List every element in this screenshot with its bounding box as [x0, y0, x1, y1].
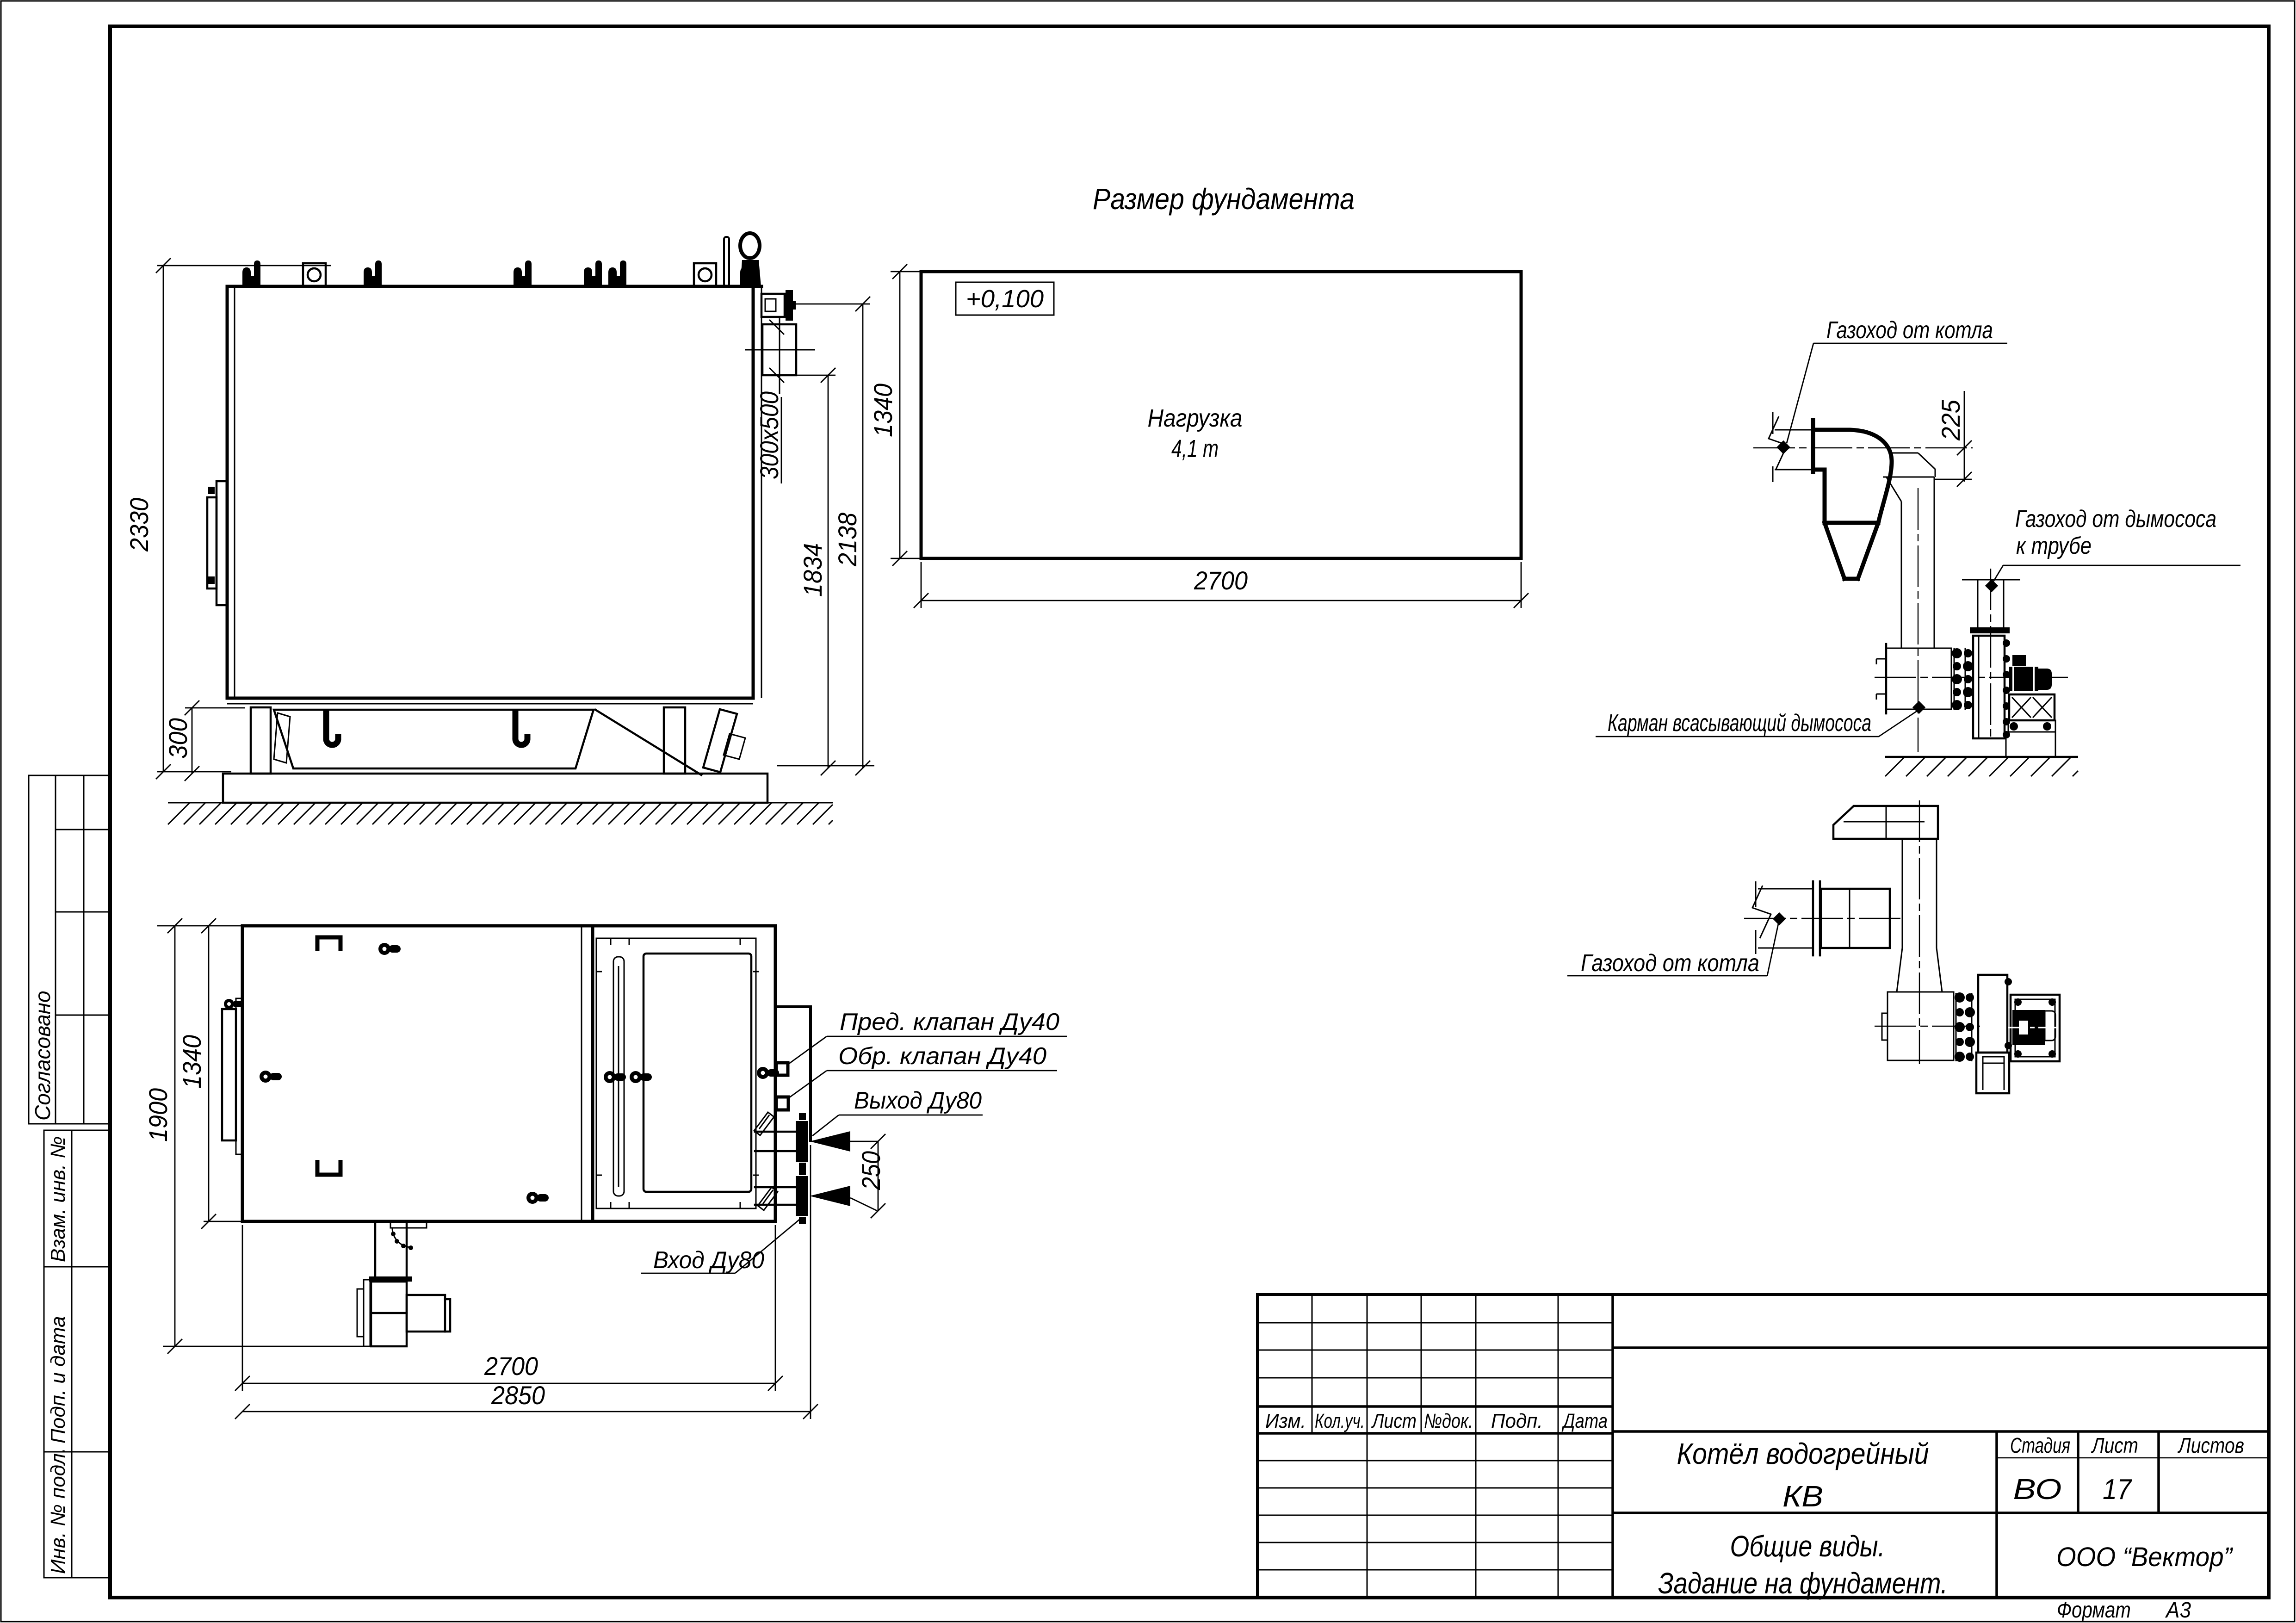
- svg-text:Размер фундамента: Размер фундамента: [1093, 182, 1355, 216]
- svg-text:Листов: Листов: [2177, 1433, 2244, 1457]
- svg-text:2330: 2330: [124, 498, 154, 552]
- svg-text:1340: 1340: [868, 384, 897, 437]
- svg-text:Стадия: Стадия: [2010, 1433, 2070, 1457]
- svg-text:ООО “Вектор”: ООО “Вектор”: [2056, 1542, 2234, 1572]
- svg-text:Изм.: Изм.: [1265, 1410, 1306, 1432]
- svg-text:1834: 1834: [798, 543, 827, 597]
- svg-text:Газоход от котла: Газоход от котла: [1826, 317, 1993, 344]
- svg-text:Котёл водогрейный: Котёл водогрейный: [1677, 1437, 1929, 1470]
- svg-text:Нагрузка: Нагрузка: [1148, 404, 1243, 432]
- svg-text:Формат: Формат: [2057, 1598, 2131, 1623]
- svg-text:1340: 1340: [177, 1035, 206, 1089]
- svg-text:Взам. инв. №: Взам. инв. №: [47, 1136, 69, 1262]
- svg-text:Газоход от котла: Газоход от котла: [1581, 950, 1759, 977]
- svg-text:Лист: Лист: [1371, 1410, 1417, 1432]
- svg-text:Подп.: Подп.: [1491, 1410, 1543, 1432]
- svg-text:+0,100: +0,100: [966, 285, 1044, 313]
- svg-text:Дата: Дата: [1561, 1410, 1608, 1432]
- svg-text:2700: 2700: [1194, 566, 1248, 595]
- svg-text:Пред. клапан Ду40: Пред. клапан Ду40: [840, 1009, 1059, 1035]
- svg-text:300: 300: [163, 718, 192, 759]
- svg-text:Вход Ду80: Вход Ду80: [653, 1247, 764, 1274]
- svg-text:ВО: ВО: [2013, 1474, 2062, 1505]
- svg-text:Лист: Лист: [2091, 1433, 2138, 1457]
- svg-text:Инв. № подл.: Инв. № подл.: [47, 1448, 69, 1574]
- svg-text:250: 250: [856, 1151, 885, 1190]
- svg-text:Обр. клапан Ду40: Обр. клапан Ду40: [838, 1043, 1046, 1070]
- svg-text:Задание на фундамент.: Задание на фундамент.: [1658, 1567, 1948, 1600]
- svg-text:Карман всасывающий дымососа: Карман всасывающий дымососа: [1608, 710, 1871, 737]
- svg-text:к трубе: к трубе: [2016, 533, 2092, 559]
- svg-text:4,1 т: 4,1 т: [1171, 435, 1219, 463]
- svg-text:Подп. и дата: Подп. и дата: [47, 1316, 69, 1443]
- svg-text:2138: 2138: [833, 513, 862, 567]
- svg-text:1900: 1900: [143, 1088, 173, 1142]
- svg-text:2850: 2850: [491, 1381, 545, 1410]
- svg-text:Согласовано: Согласовано: [31, 991, 55, 1121]
- svg-text:Кол.уч.: Кол.уч.: [1315, 1410, 1365, 1432]
- svg-text:2700: 2700: [484, 1351, 538, 1381]
- svg-text:Газоход от дымососа: Газоход от дымососа: [2015, 506, 2216, 533]
- svg-text:А3: А3: [2165, 1598, 2191, 1623]
- svg-text:КВ: КВ: [1782, 1480, 1823, 1513]
- svg-text:Выход Ду80: Выход Ду80: [854, 1087, 982, 1114]
- svg-text:№док.: №док.: [1424, 1410, 1473, 1432]
- svg-text:300х500: 300х500: [755, 391, 784, 479]
- svg-text:225: 225: [1936, 399, 1965, 441]
- svg-text:Общие виды.: Общие виды.: [1730, 1530, 1885, 1563]
- svg-text:17: 17: [2103, 1474, 2132, 1505]
